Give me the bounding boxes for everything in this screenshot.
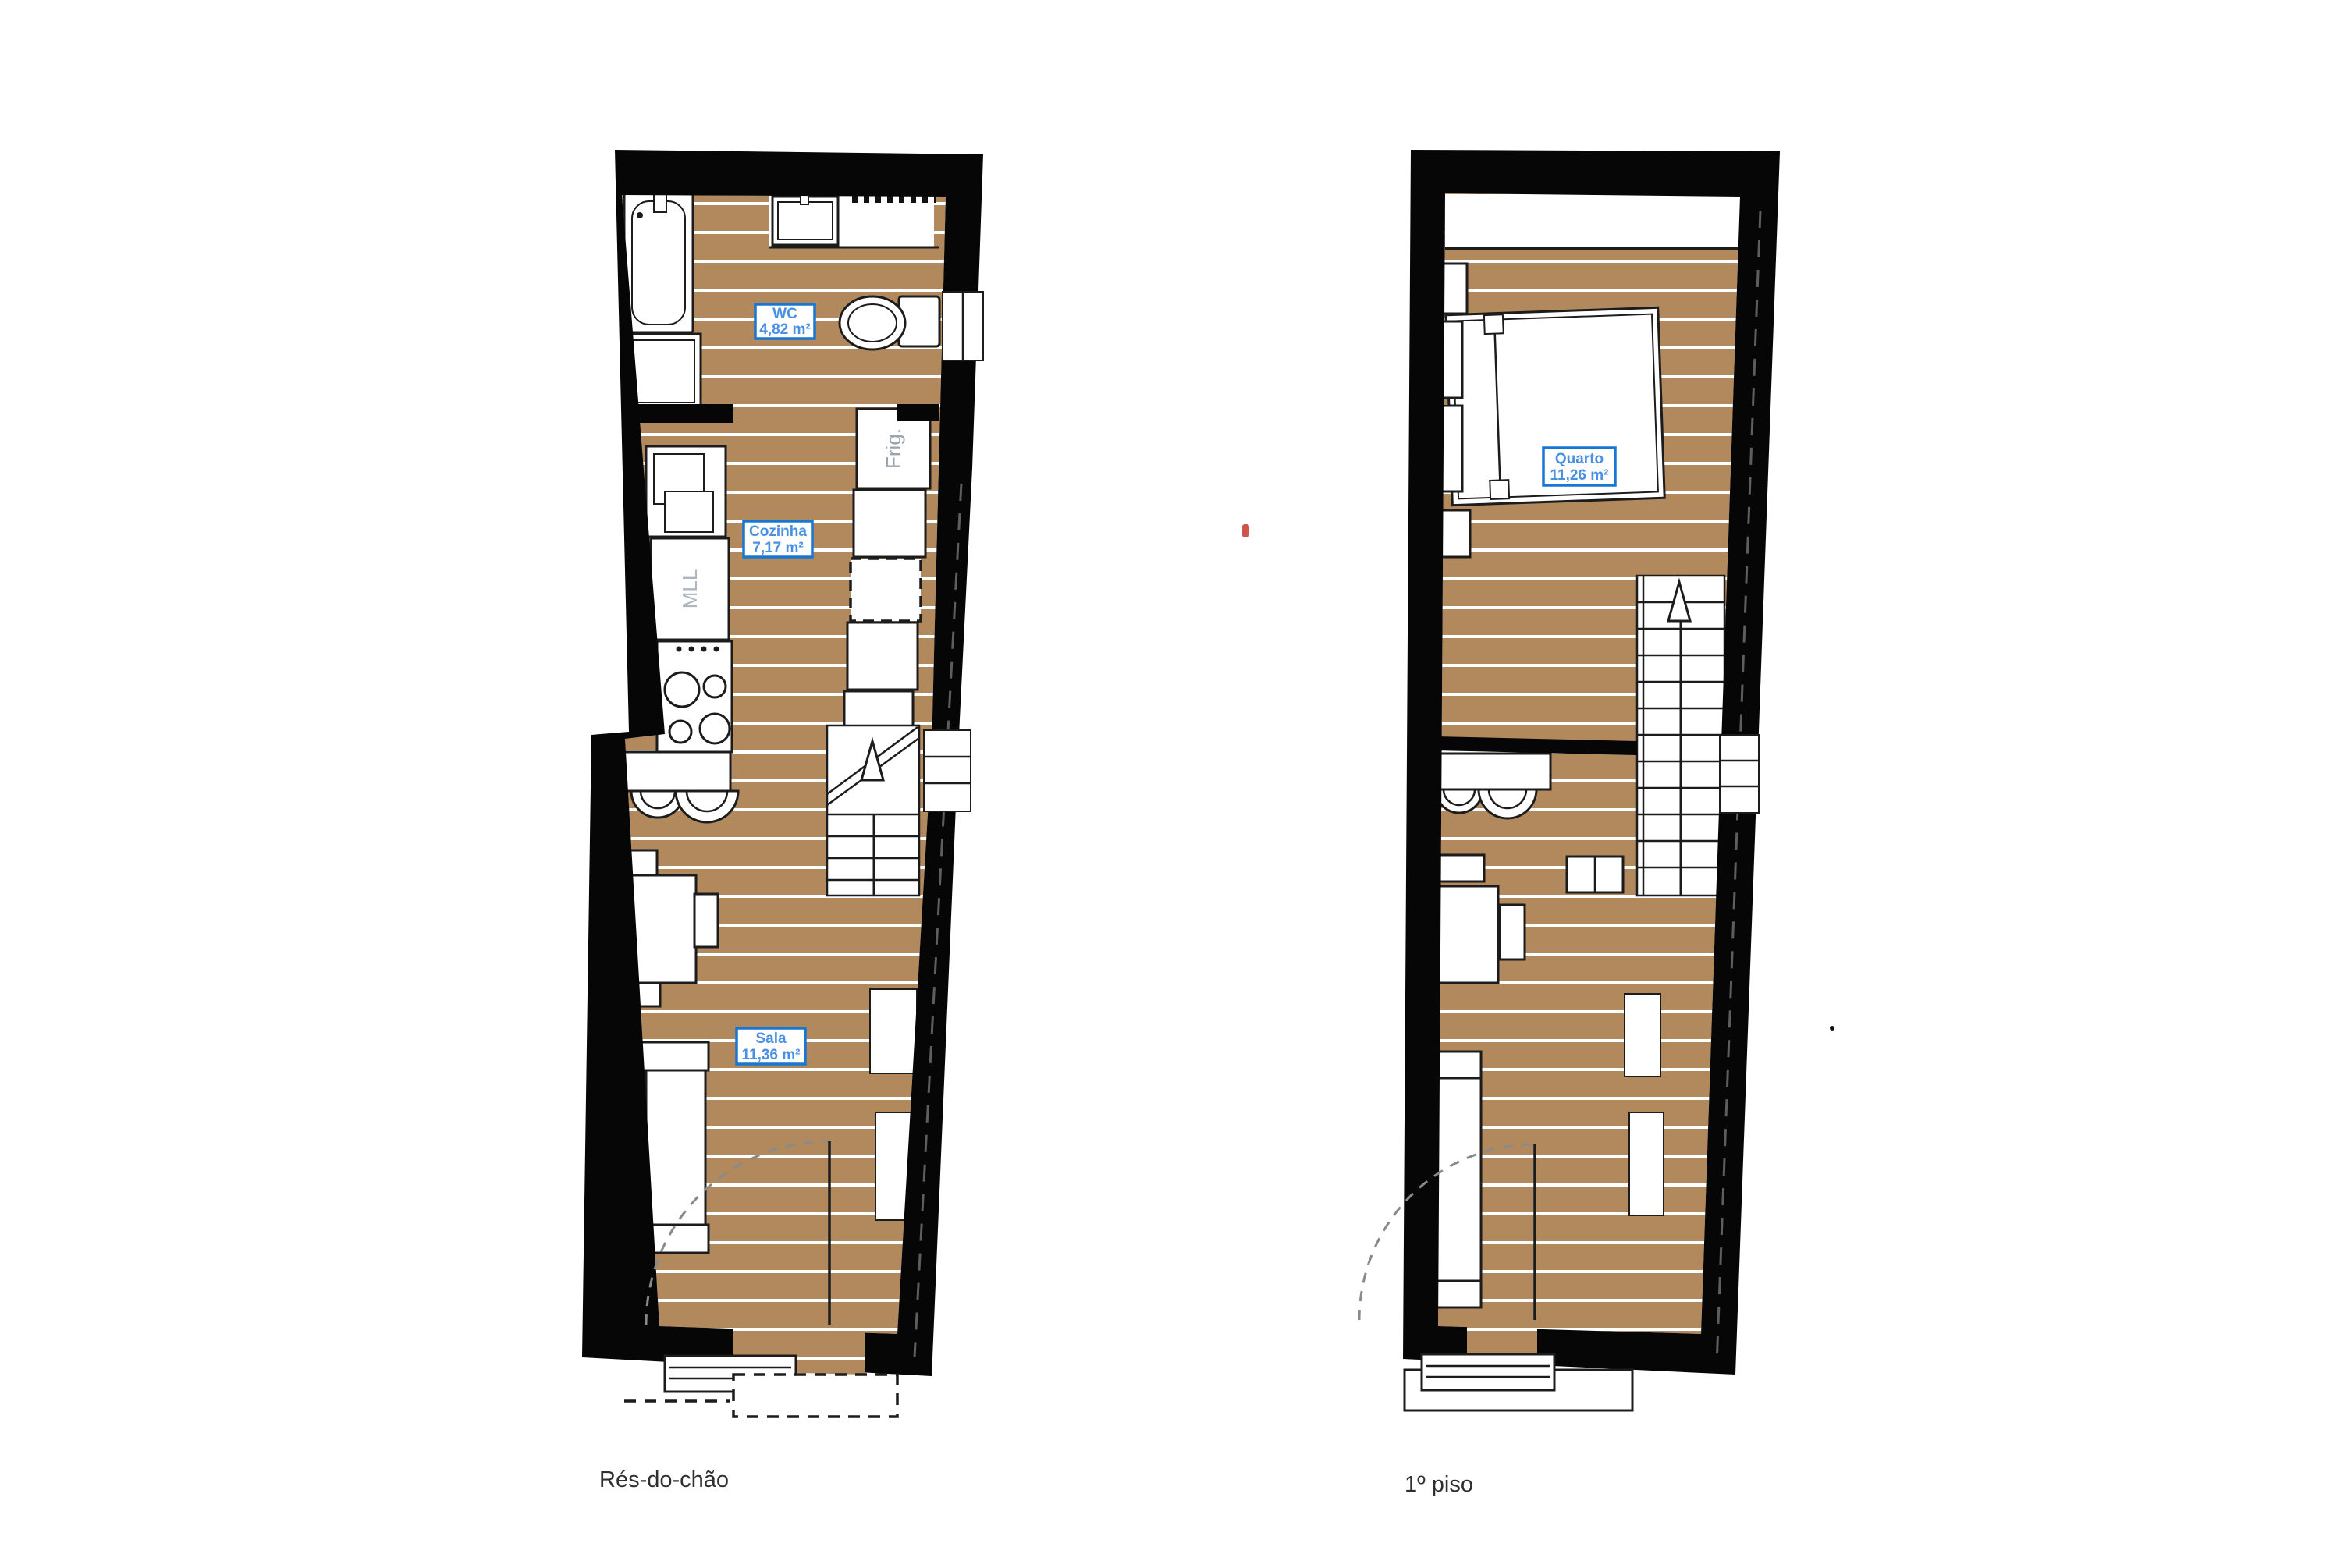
toilet: [840, 296, 939, 349]
room-label-wc: WC 4,82 m²: [755, 304, 815, 339]
window: [1720, 735, 1759, 813]
room-label-cozinha: Cozinha 7,17 m²: [744, 521, 812, 557]
room-area: 7,17 m²: [752, 540, 803, 556]
dot-artifact: [1830, 1026, 1834, 1031]
bed-corner-fold: [1484, 314, 1504, 334]
dishwasher-label: MLL: [678, 569, 701, 609]
room-label-sala: Sala 11,36 m²: [737, 1028, 805, 1064]
stove: [657, 641, 732, 752]
chair: [1500, 905, 1525, 960]
plan-ground-floor: MLL Frig.: [582, 150, 983, 1492]
room-area: 4,82 m²: [759, 321, 810, 338]
fridge-label: Frig.: [882, 428, 905, 469]
washing-machine: [627, 334, 701, 409]
bed-corner-fold: [1490, 480, 1509, 499]
window: [924, 730, 971, 811]
room-name: Sala: [755, 1031, 787, 1047]
wall-ledge: [1625, 994, 1660, 1077]
room-area: 11,26 m²: [1550, 467, 1609, 484]
room-name: Cozinha: [749, 523, 807, 540]
bathtub-drain: [637, 212, 643, 218]
caption-ground-floor: Rés-do-chão: [599, 1467, 729, 1492]
kitchen-unit: [854, 490, 925, 557]
sofa-seat: [646, 1070, 705, 1225]
room-area: 11,36 m²: [742, 1047, 801, 1063]
stairs-ground: [827, 725, 919, 896]
threshold-dashed: [733, 1375, 897, 1417]
red-artifact-mark: [1242, 524, 1249, 537]
first-windows: [1720, 735, 1759, 813]
chair: [1434, 855, 1484, 882]
desk: [1432, 754, 1550, 789]
top-bay: [1445, 194, 1740, 247]
bathtub: [624, 186, 693, 332]
room-name: WC: [772, 306, 797, 322]
chair: [694, 894, 718, 947]
kitchen-sink-unit: [646, 446, 726, 537]
kitchen-unit: [847, 623, 918, 690]
landing-cabinet: [1567, 857, 1623, 892]
washbasin: [772, 189, 838, 245]
wall-ledge: [1629, 1112, 1664, 1215]
caption-first-floor: 1º piso: [1405, 1472, 1473, 1497]
room-name: Quarto: [1555, 451, 1604, 467]
room-label-quarto: Quarto 11,26 m²: [1543, 448, 1615, 485]
wall-ledge: [870, 989, 917, 1073]
plan-first-floor: Quarto 11,26 m² 1º piso: [1359, 150, 1780, 1497]
floor-plan-canvas: MLL Frig.: [0, 0, 2344, 1568]
dishwasher-unit: MLL: [651, 538, 729, 640]
stairs-first: [1637, 576, 1724, 896]
overhead-unit-dashed: [851, 559, 921, 621]
wc-divider-wall: [626, 404, 733, 423]
wc-divider-stub: [897, 404, 939, 421]
